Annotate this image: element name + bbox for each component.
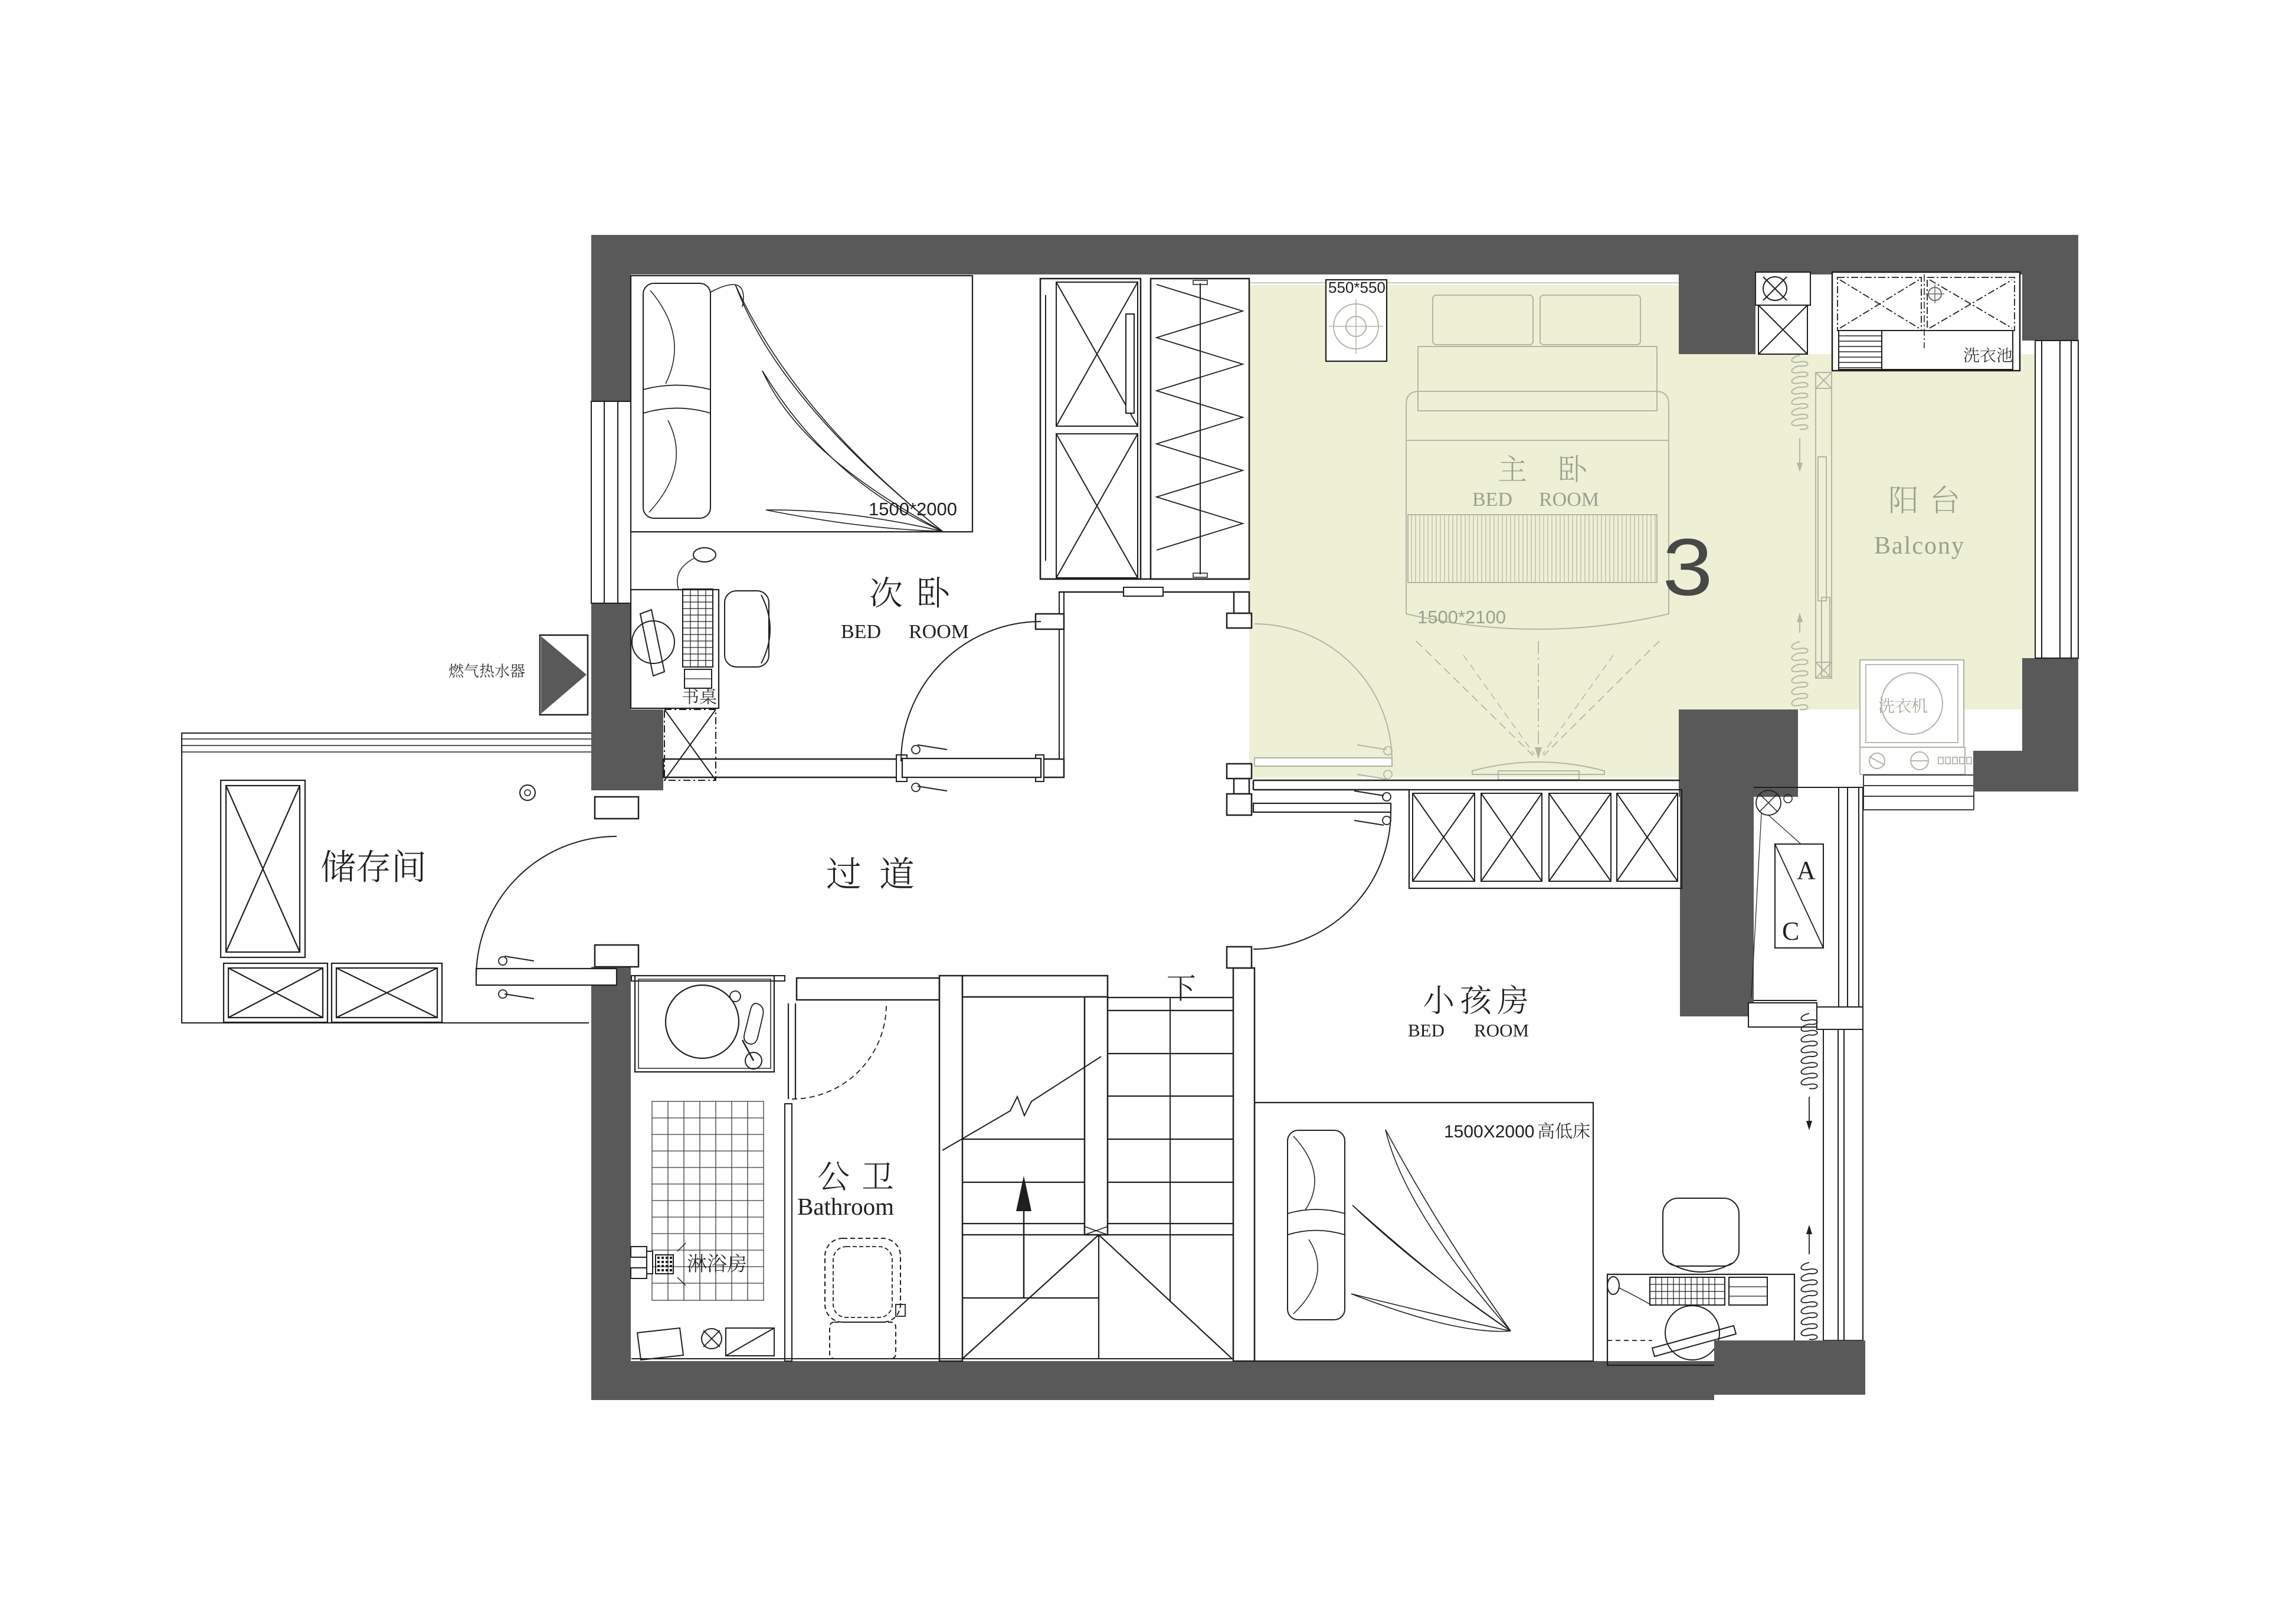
svg-text:Balcony: Balcony bbox=[1874, 532, 1965, 560]
svg-text:1500*2000: 1500*2000 bbox=[869, 499, 957, 519]
svg-text:550*550: 550*550 bbox=[1328, 279, 1386, 296]
svg-text:ROOM: ROOM bbox=[1539, 489, 1599, 511]
svg-text:C: C bbox=[1782, 917, 1799, 946]
svg-text:Bathroom: Bathroom bbox=[797, 1193, 894, 1220]
svg-text:1500X2000: 1500X2000 bbox=[1444, 1122, 1535, 1142]
svg-text:3: 3 bbox=[1662, 522, 1712, 613]
svg-text:A: A bbox=[1797, 856, 1816, 885]
svg-text:ROOM: ROOM bbox=[909, 621, 969, 643]
svg-text:1500*2100: 1500*2100 bbox=[1417, 607, 1506, 627]
svg-text:BED: BED bbox=[841, 621, 881, 643]
svg-text:BED: BED bbox=[1408, 1020, 1445, 1041]
svg-text:BED: BED bbox=[1472, 489, 1512, 511]
svg-text:ROOM: ROOM bbox=[1474, 1020, 1529, 1041]
